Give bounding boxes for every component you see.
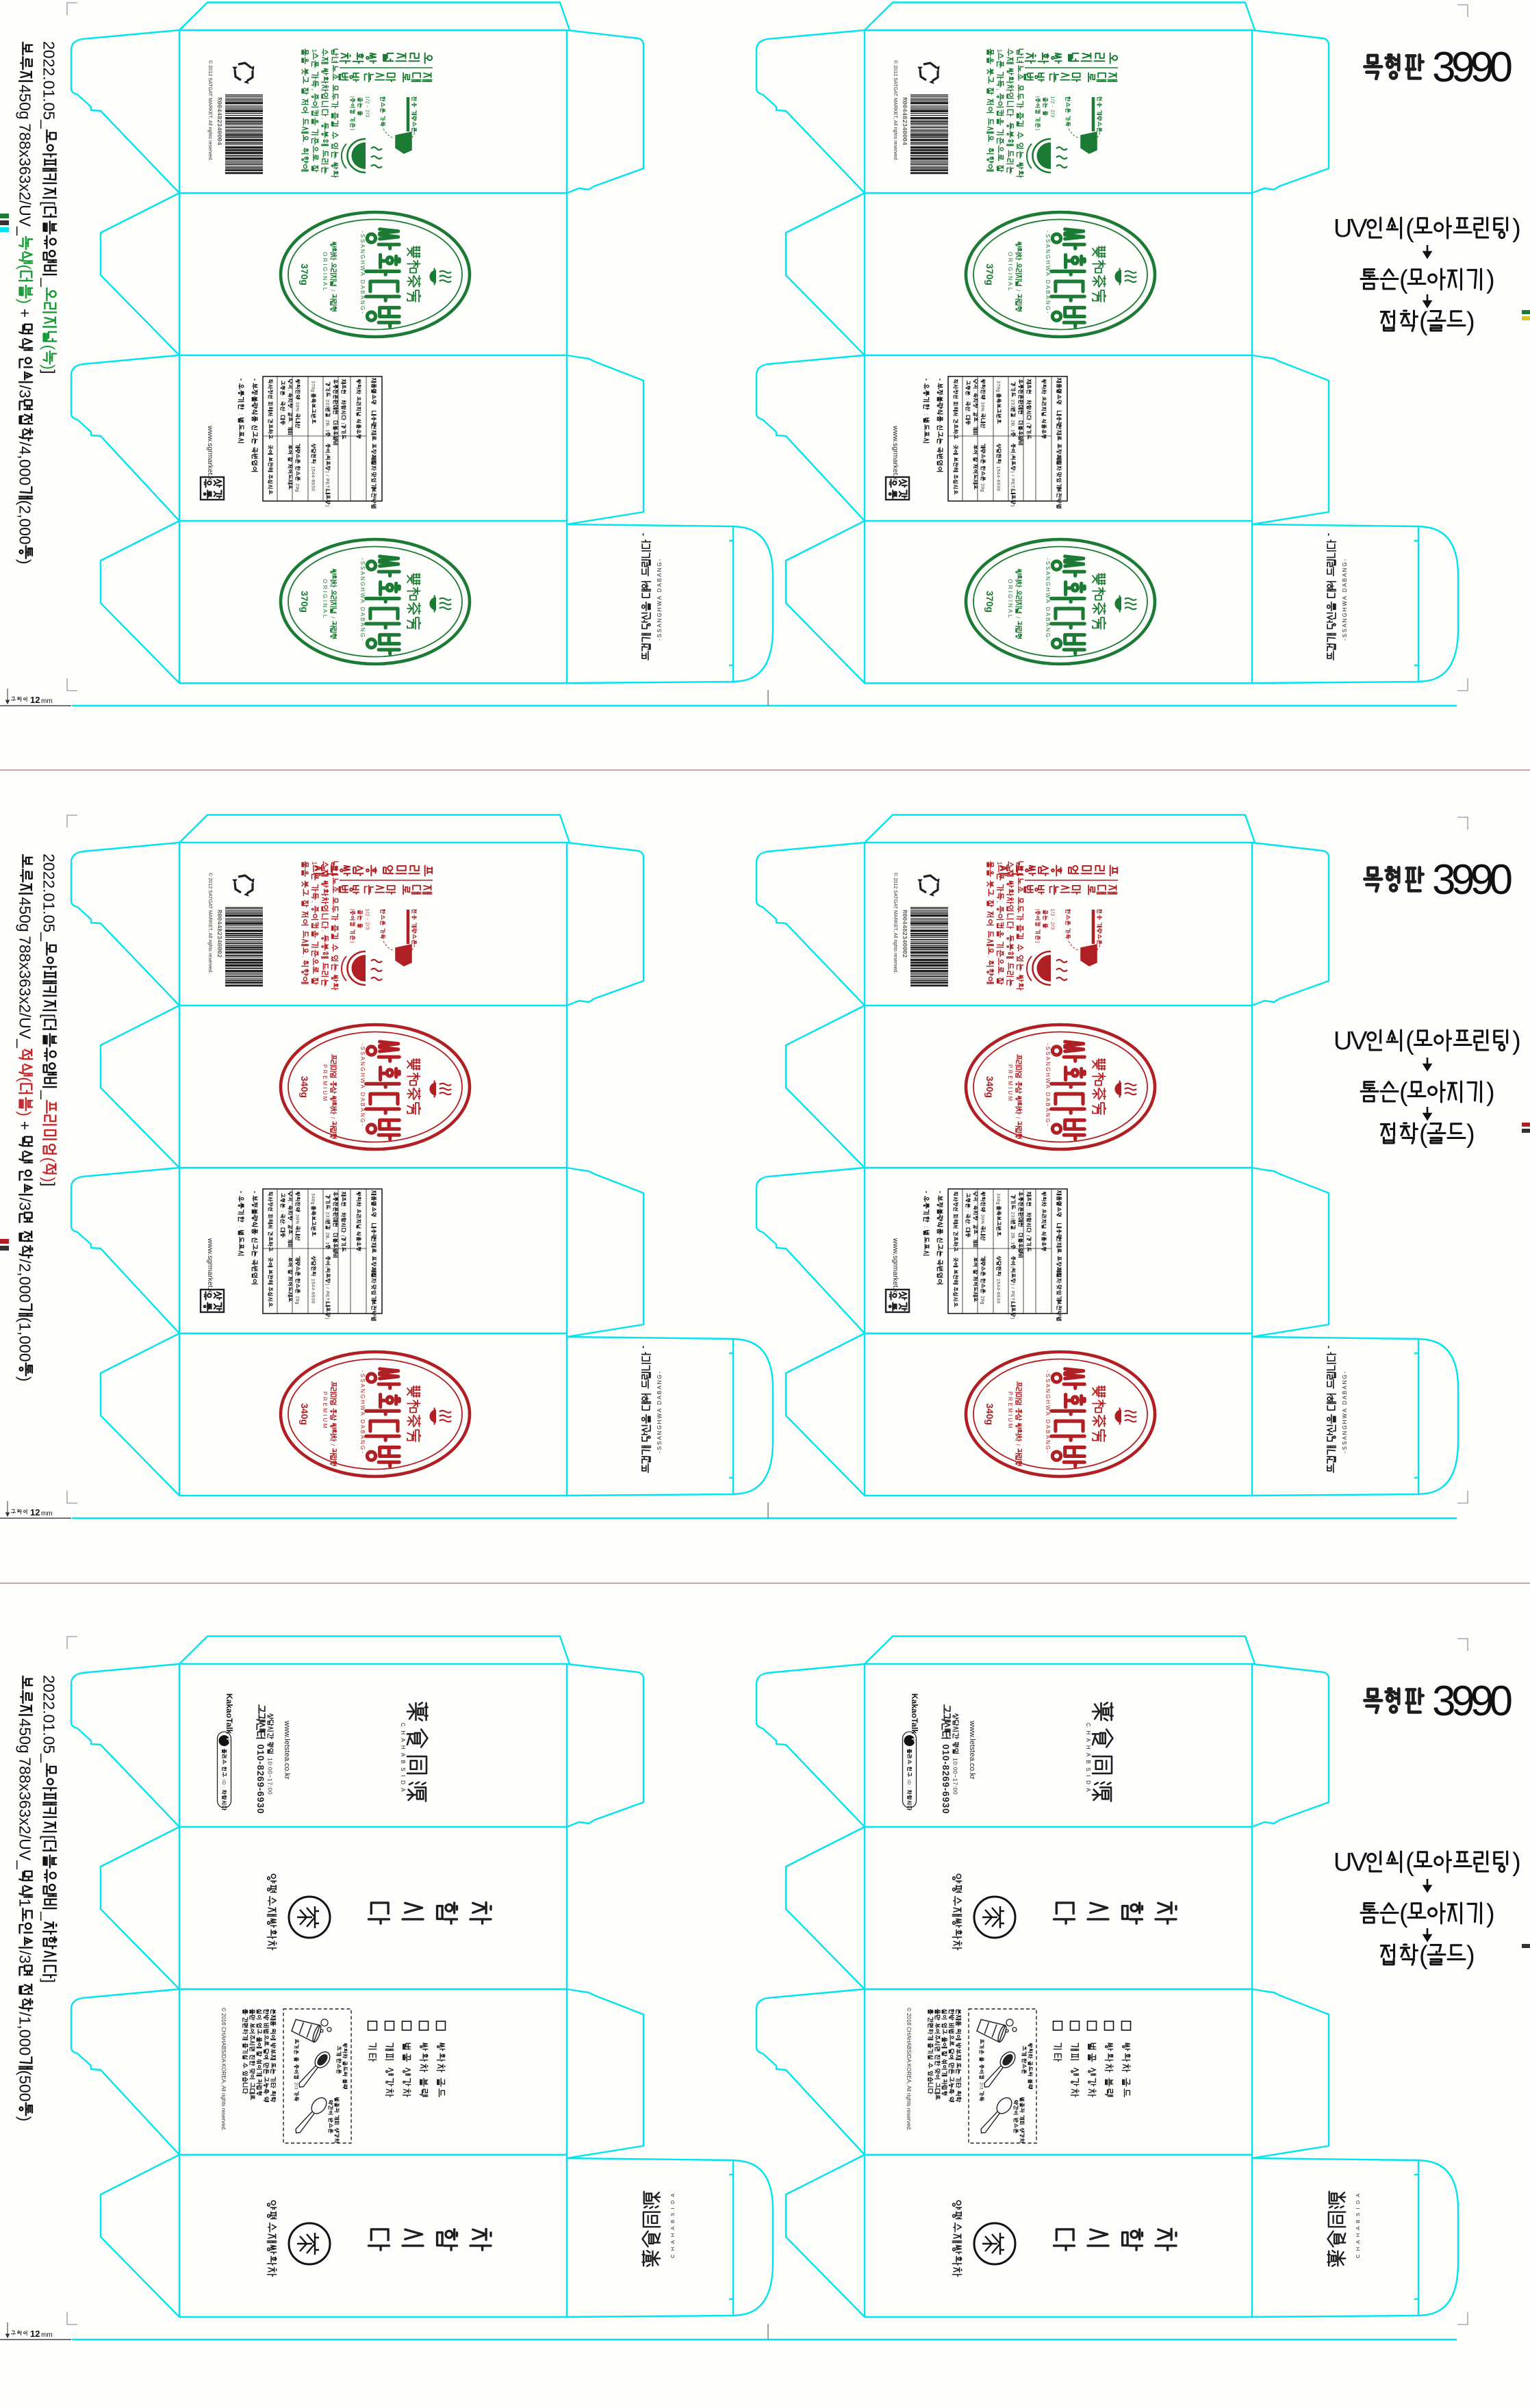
svg-text:): ) — [325, 505, 330, 507]
svg-text:): ) — [325, 472, 330, 474]
svg-text:1: 1 — [311, 49, 318, 53]
svg-text:1: 1 — [16, 1898, 34, 1907]
svg-text:(: ( — [1405, 1848, 1414, 1877]
svg-text:P: P — [225, 1738, 233, 1743]
svg-text:): ) — [16, 1111, 34, 1116]
svg-text::: : — [923, 1226, 929, 1228]
svg-text:.: . — [986, 956, 993, 958]
svg-text:30%: 30% — [980, 1214, 985, 1225]
svg-text:1544-6930: 1544-6930 — [996, 466, 1001, 491]
svg-text::: : — [1018, 418, 1023, 419]
svg-text:,: , — [280, 412, 285, 413]
svg-text:.: . — [986, 143, 993, 145]
svg-text:www.sgrmarket.kr: www.sgrmarket.kr — [206, 1238, 214, 1296]
svg-text:-SSANGHWA DABANG-: -SSANGHWA DABANG- — [359, 1043, 366, 1127]
svg-text:-SSANGHWA DABANG-: -SSANGHWA DABANG- — [656, 558, 663, 641]
svg-text:(: ( — [1026, 1235, 1031, 1238]
svg-text:www.sgrmarket.kr: www.sgrmarket.kr — [891, 425, 900, 483]
svg-text:10:00~17:00: 10:00~17:00 — [267, 1758, 274, 1795]
svg-text:2/3: 2/3 — [364, 922, 369, 930]
svg-text:370g: 370g — [984, 264, 995, 285]
svg-text:(: ( — [349, 96, 354, 98]
svg-text::: : — [341, 397, 346, 398]
svg-text:[: [ — [40, 1014, 58, 1019]
svg-text:340g: 340g — [311, 1193, 316, 1205]
svg-text:-: - — [1049, 918, 1054, 920]
svg-text:,: , — [996, 901, 1003, 903]
svg-text:788x363x2/UV_: 788x363x2/UV_ — [16, 1757, 34, 1870]
svg-text:,: , — [973, 422, 978, 424]
svg-text:PREMIUM: PREMIUM — [322, 1392, 328, 1430]
svg-text:): ) — [1486, 1899, 1495, 1928]
svg-text:© 2018 CHAHABSIDA KOREA, All r: © 2018 CHAHABSIDA KOREA, All rights rese… — [906, 2008, 912, 2131]
svg-text:R004482340002: R004482340002 — [901, 910, 908, 958]
svg-text:V: V — [1350, 1027, 1368, 1055]
svg-text:(: ( — [1405, 1027, 1414, 1055]
svg-text:PET(: PET( — [325, 1291, 330, 1303]
svg-text:1/2: 1/2 — [1049, 96, 1054, 104]
svg-text:,: , — [288, 1235, 292, 1236]
svg-text:1: 1 — [325, 1242, 330, 1244]
svg-text:12: 12 — [30, 2329, 40, 2339]
svg-text:/4,000: /4,000 — [16, 441, 34, 485]
svg-text:/: / — [325, 1288, 330, 1289]
svg-text:(: ( — [1399, 266, 1408, 294]
svg-text:2B,: 2B, — [325, 1233, 330, 1241]
svg-text:PREMIUM: PREMIUM — [1007, 1392, 1013, 1430]
svg-text:(: ( — [1399, 1899, 1408, 1928]
svg-text:-SSANGHWA DABANG-: -SSANGHWA DABANG- — [1045, 1043, 1051, 1127]
svg-text:(: ( — [40, 1157, 58, 1163]
svg-text:1: 1 — [311, 862, 318, 866]
svg-text:788x363x2/UV_: 788x363x2/UV_ — [16, 123, 34, 236]
svg-text:-SSANGHWA DABANG-: -SSANGHWA DABANG- — [656, 1370, 663, 1453]
svg-text:2B,: 2B, — [1010, 420, 1015, 428]
svg-text:): ) — [1466, 1120, 1475, 1149]
svg-text:,: , — [288, 409, 292, 410]
svg-text:/: / — [329, 1444, 335, 1446]
svg-text:C H A H A B S I D A: C H A H A B S I D A — [670, 2192, 676, 2258]
svg-text:V: V — [1350, 1848, 1368, 1877]
svg-text:3990: 3990 — [1432, 856, 1513, 904]
svg-text::: : — [221, 1786, 226, 1788]
svg-text:): ) — [1512, 214, 1521, 243]
svg-text:© 2012 SATGAT MARKET, All righ: © 2012 SATGAT MARKET, All rights reserve… — [207, 60, 214, 161]
svg-text:340g: 340g — [299, 1403, 310, 1425]
svg-text:20g: 20g — [980, 1296, 985, 1305]
svg-text:www.letstea.co.kr: www.letstea.co.kr — [968, 1720, 976, 1780]
svg-text:R004482340002: R004482340002 — [216, 910, 222, 958]
svg-text:450g: 450g — [16, 85, 34, 120]
svg-text:,: , — [311, 88, 318, 90]
svg-text:mm: mm — [41, 2331, 53, 2339]
svg-text:-SSANGHWA DABANG-: -SSANGHWA DABANG- — [1342, 558, 1348, 641]
svg-text:010-8269-6930: 010-8269-6930 — [255, 1744, 266, 1814]
svg-text:ID: ID — [221, 1780, 226, 1785]
svg-text:,: , — [973, 409, 978, 410]
svg-text:788x363x2/UV_: 788x363x2/UV_ — [16, 936, 34, 1049]
svg-text:): ) — [40, 1177, 58, 1182]
svg-text:-SSANGHWA DABANG-: -SSANGHWA DABANG- — [1045, 231, 1051, 315]
svg-text:_: _ — [40, 1090, 58, 1100]
svg-text:U: U — [1334, 1848, 1352, 1877]
svg-text:1: 1 — [996, 49, 1003, 53]
svg-text:/1,000: /1,000 — [16, 2012, 34, 2055]
svg-text:(2,000: (2,000 — [16, 500, 34, 545]
svg-text:30%: 30% — [295, 1214, 300, 1225]
svg-text:): ) — [1466, 307, 1475, 336]
svg-text:(: ( — [325, 1266, 330, 1268]
svg-text:/: / — [1015, 617, 1021, 619]
svg-text:370g: 370g — [984, 591, 995, 613]
svg-text:C H A H A B S I D A: C H A H A B S I D A — [1085, 1723, 1091, 1793]
svg-text:(1,000: (1,000 — [16, 1317, 34, 1361]
svg-text:2/3: 2/3 — [1049, 110, 1054, 118]
svg-text:V: V — [1350, 214, 1368, 243]
svg-text:/: / — [329, 1117, 335, 1119]
svg-text:/3: /3 — [16, 385, 34, 398]
svg-text:3990: 3990 — [1432, 44, 1513, 91]
svg-text::: : — [906, 1786, 911, 1788]
svg-text:(: ( — [1026, 423, 1031, 425]
svg-text:231: 231 — [325, 400, 330, 409]
svg-text:2022.01.05_: 2022.01.05_ — [40, 41, 58, 129]
svg-text:.: . — [321, 930, 328, 932]
svg-text:]: ] — [40, 1979, 58, 1983]
svg-text:[: [ — [40, 1835, 58, 1840]
svg-text:-SSANGHWA DABANG-: -SSANGHWA DABANG- — [1045, 558, 1051, 642]
svg-text:12: 12 — [30, 1507, 40, 1517]
svg-text:(: ( — [325, 454, 330, 456]
svg-text:30%: 30% — [980, 402, 985, 412]
svg-text:340g: 340g — [984, 1076, 995, 1098]
svg-text:1544-6930: 1544-6930 — [311, 466, 316, 491]
svg-text:+: + — [16, 309, 34, 318]
svg-text:/: / — [329, 617, 335, 619]
svg-text:(: ( — [16, 1077, 34, 1082]
svg-text:PET(: PET( — [1010, 478, 1015, 490]
svg-text:(: ( — [341, 1235, 346, 1238]
svg-text:): ) — [1466, 1941, 1475, 1970]
svg-text:www.sgrmarket.kr: www.sgrmarket.kr — [891, 1238, 900, 1296]
svg-text:(: ( — [1010, 1266, 1015, 1268]
svg-text:1544-6930: 1544-6930 — [996, 1279, 1001, 1304]
svg-text:(500: (500 — [16, 2070, 34, 2101]
svg-text:010-8269-6930: 010-8269-6930 — [941, 1744, 951, 1814]
svg-text::: : — [1026, 1209, 1031, 1211]
svg-text::: : — [333, 418, 337, 419]
svg-text:,: , — [288, 422, 292, 424]
svg-text:ID: ID — [906, 1780, 911, 1785]
svg-text:(: ( — [1010, 454, 1015, 456]
svg-text:340g: 340g — [299, 1076, 310, 1098]
svg-text:2022.01.05_: 2022.01.05_ — [40, 1675, 58, 1763]
svg-text:370g: 370g — [299, 264, 310, 285]
svg-text:231: 231 — [325, 1212, 330, 1221]
svg-text:ORIGINAL: ORIGINAL — [1007, 252, 1013, 292]
svg-text:PET(: PET( — [325, 478, 330, 490]
svg-text:(: ( — [1405, 214, 1414, 243]
svg-text::: : — [333, 1230, 337, 1231]
svg-text:_: _ — [40, 277, 58, 287]
svg-text:© 2012 SATGAT MARKET, All righ: © 2012 SATGAT MARKET, All rights reserve… — [893, 60, 899, 161]
svg-text:): ) — [1034, 129, 1039, 131]
svg-text:1/2: 1/2 — [1049, 908, 1054, 917]
svg-text:-: - — [364, 105, 369, 107]
svg-text:www.letstea.co.kr: www.letstea.co.kr — [283, 1720, 291, 1780]
svg-text:,: , — [973, 389, 978, 391]
svg-text:): ) — [16, 559, 34, 565]
svg-text:370g: 370g — [996, 381, 1001, 392]
svg-text:-SSANGHWA DABANG-: -SSANGHWA DABANG- — [359, 231, 366, 315]
svg-text:340g: 340g — [984, 1403, 995, 1425]
svg-text:2/3: 2/3 — [294, 2082, 298, 2090]
svg-text:340g: 340g — [996, 1193, 1001, 1205]
svg-text:): ) — [16, 1376, 34, 1382]
svg-text::: : — [965, 1211, 970, 1212]
svg-text:/: / — [1010, 1288, 1015, 1289]
svg-text:1/2: 1/2 — [364, 96, 369, 104]
svg-text::: : — [341, 1209, 346, 1211]
svg-text:12: 12 — [30, 695, 40, 705]
svg-text:/: / — [1015, 1444, 1021, 1446]
svg-text:.: . — [301, 143, 308, 145]
svg-text:20g: 20g — [980, 483, 985, 492]
svg-text:-: - — [364, 918, 369, 920]
svg-text:2022.01.05_: 2022.01.05_ — [40, 854, 58, 942]
svg-text:/: / — [1015, 290, 1021, 292]
svg-text:ORIGINAL: ORIGINAL — [322, 252, 328, 292]
svg-text:): ) — [325, 1318, 330, 1320]
svg-text:1: 1 — [325, 429, 330, 432]
svg-text:2/3: 2/3 — [364, 110, 369, 118]
svg-text:): ) — [325, 1284, 330, 1286]
svg-text:/: / — [329, 290, 335, 292]
svg-text::: : — [238, 1226, 244, 1228]
svg-text:): ) — [1010, 1284, 1015, 1286]
svg-text:-SSANGHWA DABANG-: -SSANGHWA DABANG- — [359, 558, 366, 642]
svg-text:): ) — [16, 2116, 34, 2122]
svg-text:2B,: 2B, — [1010, 1233, 1015, 1241]
svg-text:1/2: 1/2 — [364, 908, 369, 917]
svg-text:,: , — [973, 1235, 978, 1236]
svg-text:,: , — [973, 1221, 978, 1222]
svg-text:mm: mm — [41, 697, 53, 705]
svg-text:30%: 30% — [295, 402, 300, 412]
svg-text:): ) — [1010, 1318, 1015, 1320]
svg-text:(: ( — [16, 264, 34, 270]
svg-text:1: 1 — [996, 862, 1003, 866]
svg-text:C H A H A B S I D A: C H A H A B S I D A — [1355, 2192, 1361, 2258]
svg-text:-SSANGHWA DABANG-: -SSANGHWA DABANG- — [1342, 1370, 1348, 1453]
svg-text:(: ( — [1419, 1120, 1428, 1149]
svg-text:,: , — [288, 1221, 292, 1222]
svg-text:PET(: PET( — [1010, 1291, 1015, 1303]
svg-text:10:00~17:00: 10:00~17:00 — [952, 1758, 959, 1795]
svg-text::: : — [1026, 397, 1031, 398]
svg-text:450g: 450g — [16, 1719, 34, 1754]
svg-text:): ) — [349, 129, 354, 131]
svg-text::: : — [280, 398, 285, 400]
svg-text:370g: 370g — [311, 381, 316, 392]
svg-text:(: ( — [1419, 307, 1428, 336]
svg-text:1: 1 — [1010, 1242, 1015, 1244]
svg-text:/: / — [325, 475, 330, 476]
svg-text:KakaoTalk: KakaoTalk — [225, 1693, 234, 1734]
svg-text:© 2012 SATGAT MARKET, All righ: © 2012 SATGAT MARKET, All rights reserve… — [893, 873, 899, 973]
svg-text:): ) — [1034, 941, 1039, 943]
svg-text:.: . — [1006, 930, 1013, 932]
svg-text:www.sgrmarket.kr: www.sgrmarket.kr — [206, 425, 214, 483]
svg-text:(: ( — [1034, 908, 1039, 910]
svg-text:): ) — [1512, 1027, 1521, 1055]
svg-text::: : — [965, 398, 970, 400]
svg-text:,: , — [288, 1202, 292, 1203]
svg-text:,: , — [288, 389, 292, 391]
svg-text:2B,: 2B, — [325, 420, 330, 428]
svg-text:.: . — [1006, 118, 1013, 120]
svg-text:.: . — [321, 118, 328, 120]
svg-text:450g: 450g — [16, 897, 34, 932]
svg-text:R004482340004: R004482340004 — [901, 97, 908, 145]
svg-text:): ) — [16, 298, 34, 304]
svg-text:-SSANGHWA DABANG-: -SSANGHWA DABANG- — [1045, 1370, 1051, 1455]
svg-text:2/3: 2/3 — [1049, 922, 1054, 930]
svg-text:,: , — [973, 1202, 978, 1203]
svg-text:(: ( — [40, 345, 58, 350]
svg-text::: : — [238, 413, 244, 415]
svg-text:(: ( — [1034, 96, 1039, 98]
svg-text:]: ] — [40, 1182, 58, 1186]
svg-text:1544-6930: 1544-6930 — [311, 1279, 316, 1304]
svg-text:(: ( — [1399, 1078, 1408, 1107]
svg-text:+: + — [16, 1121, 34, 1130]
svg-text:/2,000: /2,000 — [16, 1259, 34, 1303]
svg-text:(: ( — [341, 423, 346, 425]
svg-text:_: _ — [40, 1911, 58, 1921]
svg-text:,: , — [280, 1225, 285, 1226]
svg-text:ORIGINAL: ORIGINAL — [322, 579, 328, 619]
svg-text:): ) — [1010, 505, 1015, 507]
svg-text:1: 1 — [1010, 429, 1015, 432]
svg-text:P: P — [910, 1738, 918, 1743]
svg-text:2/3: 2/3 — [979, 2082, 984, 2090]
svg-text:PREMIUM: PREMIUM — [322, 1064, 328, 1103]
svg-text:R004482340004: R004482340004 — [216, 97, 222, 145]
svg-text:): ) — [349, 941, 354, 943]
svg-text:): ) — [1512, 1848, 1521, 1877]
svg-text:© 2012 SATGAT MARKET, All righ: © 2012 SATGAT MARKET, All rights reserve… — [207, 873, 214, 973]
svg-text:): ) — [1486, 266, 1495, 294]
svg-text:.: . — [301, 956, 308, 958]
svg-text::: : — [923, 413, 929, 415]
svg-text:/: / — [1015, 1117, 1021, 1119]
svg-text:ORIGINAL: ORIGINAL — [1007, 579, 1013, 619]
svg-text:U: U — [1334, 1027, 1352, 1055]
svg-text:20g: 20g — [295, 1296, 300, 1305]
svg-text:]: ] — [40, 370, 58, 374]
svg-text:/3: /3 — [16, 1198, 34, 1211]
svg-text:KakaoTalk: KakaoTalk — [910, 1693, 919, 1734]
svg-text:© 2018 CHAHABSIDA KOREA, All r: © 2018 CHAHABSIDA KOREA, All rights rese… — [220, 2008, 227, 2131]
svg-text:): ) — [1486, 1078, 1495, 1107]
svg-text:PREMIUM: PREMIUM — [1007, 1064, 1013, 1103]
svg-text:): ) — [1010, 472, 1015, 474]
svg-text:C H A H A B S I D A: C H A H A B S I D A — [400, 1723, 406, 1793]
svg-text:(: ( — [349, 908, 354, 910]
svg-text:): ) — [40, 364, 58, 370]
svg-text:,: , — [311, 901, 318, 903]
svg-text:[: [ — [40, 201, 58, 206]
svg-text:,: , — [965, 412, 970, 413]
svg-text:-SSANGHWA DABANG-: -SSANGHWA DABANG- — [359, 1370, 366, 1455]
svg-text:/3: /3 — [16, 1951, 34, 1964]
svg-text:/: / — [1010, 475, 1015, 476]
svg-text:,: , — [996, 88, 1003, 90]
svg-text::: : — [280, 1211, 285, 1212]
svg-text:U: U — [1334, 214, 1352, 243]
svg-text:20g: 20g — [295, 483, 300, 492]
svg-text:370g: 370g — [299, 591, 310, 613]
svg-text:-: - — [1049, 105, 1054, 107]
svg-text:3990: 3990 — [1432, 1678, 1513, 1725]
svg-text:231: 231 — [1010, 1212, 1015, 1221]
svg-text:231: 231 — [1010, 400, 1015, 409]
svg-text:,: , — [965, 1225, 970, 1226]
svg-text::: : — [1018, 1230, 1023, 1231]
svg-text:mm: mm — [41, 1510, 53, 1517]
svg-text:(: ( — [1419, 1941, 1428, 1970]
